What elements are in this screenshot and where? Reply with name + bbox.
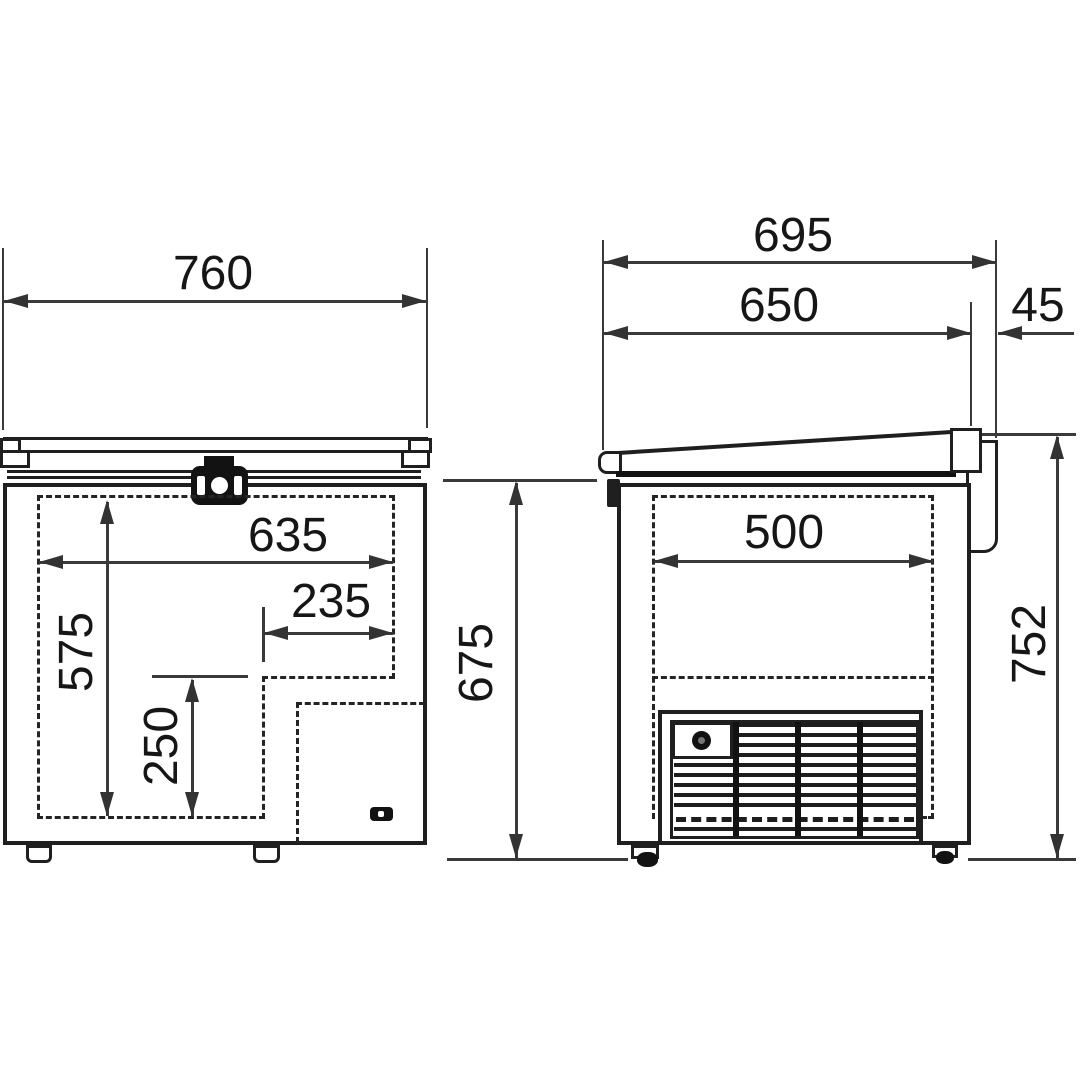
arrowhead-icon — [972, 255, 996, 269]
arrowhead-icon — [947, 326, 971, 340]
arrowhead-icon — [604, 326, 628, 340]
side-interior-dashed-floor — [652, 676, 934, 679]
dim-label-side-overall-height: 752 — [1006, 604, 1054, 684]
arrowhead-icon — [909, 554, 933, 568]
side-lid-top-edge — [618, 430, 954, 455]
side-lid-rear-cap — [950, 428, 982, 473]
side-interior-dashed-right — [931, 495, 934, 819]
dim-label-side-inner-width: 500 — [744, 509, 824, 557]
side-caster-front-icon — [637, 852, 658, 867]
dim-label-side-overall-depth: 695 — [753, 212, 833, 260]
extension-line — [995, 240, 997, 438]
dim-line-side-inner-width — [654, 560, 933, 563]
grille-divider — [795, 722, 801, 836]
arrowhead-icon — [1050, 834, 1064, 858]
thermostat-knob-center — [698, 737, 705, 744]
arrowhead-icon — [604, 255, 628, 269]
side-interior-dashed-top — [652, 495, 934, 498]
side-interior-dashed-left — [652, 495, 655, 819]
dim-label-side-body-depth: 650 — [739, 282, 819, 330]
side-lid-bottom-band — [616, 471, 956, 477]
side-view: 695 650 45 500 752 — [0, 0, 1080, 1080]
extension-line — [970, 302, 972, 426]
side-caster-rear-icon — [936, 851, 954, 864]
dim-label-side-hinge-protrusion: 45 — [1011, 282, 1064, 330]
dim-line-side-overall-height — [1056, 437, 1059, 858]
arrowhead-icon — [1050, 435, 1064, 459]
freezer-dimension-diagram: 760 635 235 575 250 675 — [0, 0, 1080, 1080]
grille-divider — [733, 722, 739, 836]
grille-divider — [857, 722, 863, 836]
arrowhead-icon — [654, 554, 678, 568]
floor-reference-line — [968, 858, 1076, 861]
dim-line-side-body-depth — [604, 332, 971, 335]
extension-line — [602, 240, 604, 450]
